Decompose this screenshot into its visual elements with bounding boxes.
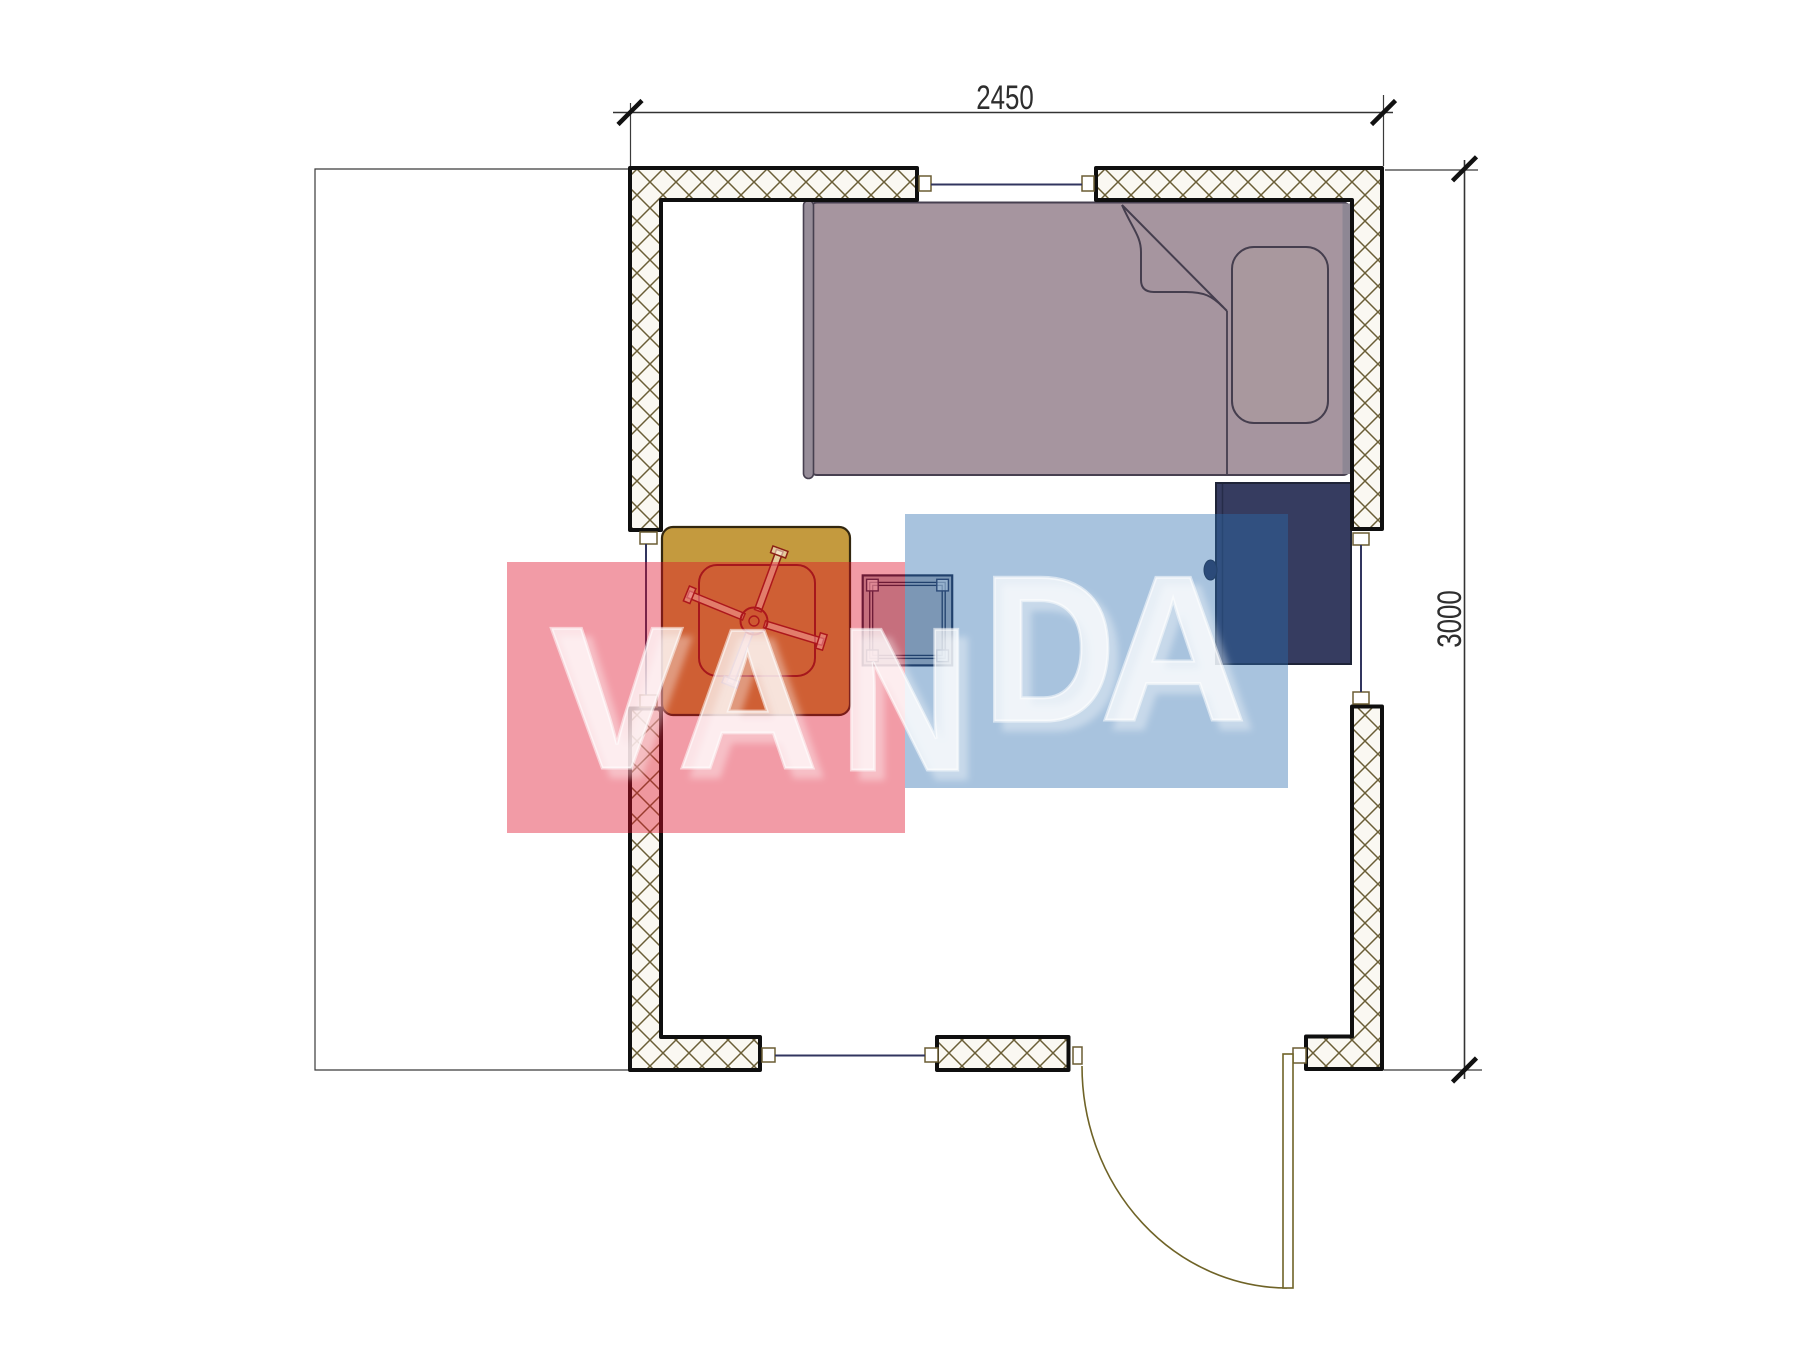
svg-text:V: V bbox=[550, 585, 683, 812]
svg-text:D: D bbox=[982, 532, 1116, 766]
svg-text:N: N bbox=[839, 585, 970, 814]
svg-text:A: A bbox=[677, 587, 818, 811]
svg-text:3000: 3000 bbox=[1430, 590, 1468, 648]
svg-text:2450: 2450 bbox=[976, 78, 1034, 116]
svg-text:A: A bbox=[1100, 533, 1247, 764]
